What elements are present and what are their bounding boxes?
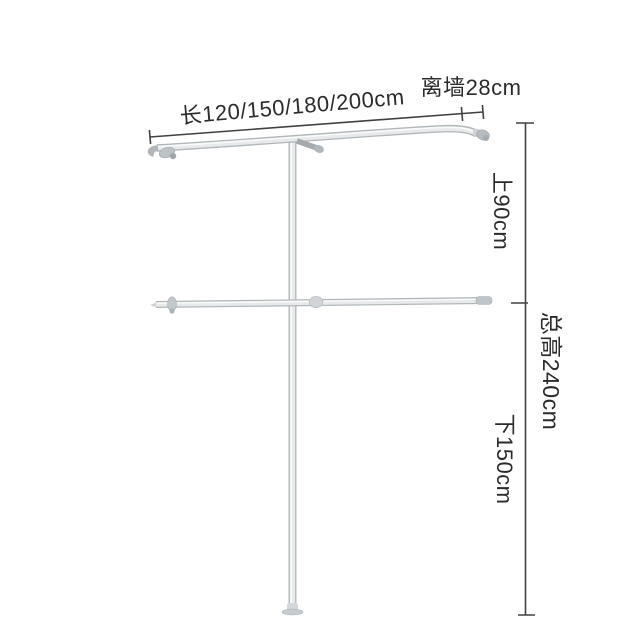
upper-section-label: 上90cm	[487, 172, 519, 250]
middle-rail	[150, 296, 492, 313]
total-height-label: 总高240cm	[536, 312, 570, 431]
middle-rail-left-knob	[169, 308, 174, 313]
pole-base-flange	[282, 609, 303, 615]
top-rail	[151, 127, 491, 159]
middle-rail-pole-connector	[309, 296, 323, 307]
top-rail-left-knob	[170, 153, 176, 159]
pole-junction-bracket	[297, 141, 317, 148]
top-rail-right-knob	[483, 135, 489, 141]
lower-section-label: 下150cm	[490, 413, 522, 504]
wall-distance-label: 离墙28cm	[421, 70, 522, 102]
vertical-pole	[282, 142, 303, 615]
product-dimension-diagram: 长120/150/180/200cm 离墙28cm 上90cm 总高240cm …	[0, 0, 640, 640]
middle-rail-right-cap	[476, 297, 492, 305]
